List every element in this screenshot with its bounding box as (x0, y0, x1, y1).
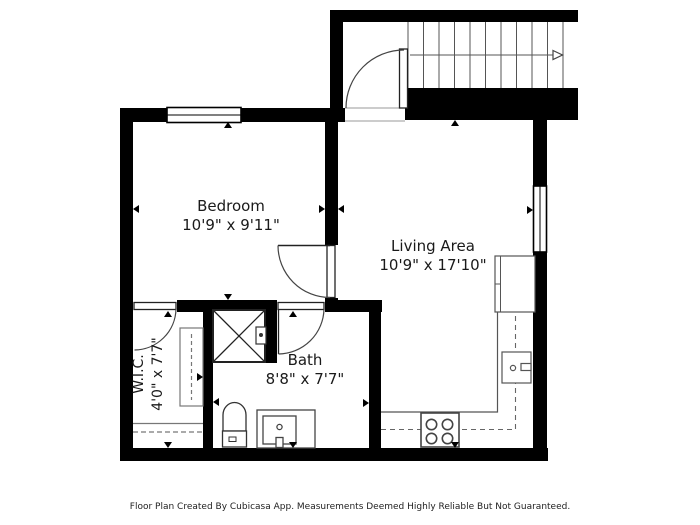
shower (213, 310, 266, 362)
bedroom-living-wall (325, 120, 338, 245)
staircase (408, 22, 563, 88)
bedroom-dimensions: 10'9" x 9'11" (182, 216, 280, 234)
left-wall (120, 108, 133, 461)
stove (421, 413, 459, 447)
stair-direction-arrow (410, 51, 563, 60)
refrigerator (495, 256, 535, 312)
toilet (223, 403, 247, 448)
shower-head-icon (256, 327, 266, 344)
bath-door (277, 300, 325, 354)
living-window (534, 186, 547, 252)
wic-label-group: W.I.C. 4'0" x 7'7" (131, 337, 166, 410)
bedroom-label: Bedroom (197, 197, 265, 215)
floor-plan-svg: Bedroom 10'9" x 9'11" Living Area 10'9" … (0, 0, 700, 525)
bath-label: Bath (288, 351, 323, 369)
living-area-dimensions: 10'9" x 17'10" (379, 256, 486, 274)
bedroom-door (278, 245, 338, 298)
bedroom-window (167, 108, 241, 123)
bath-living-wall (369, 310, 381, 450)
shower-stub-wall (265, 310, 277, 363)
floor-plan-canvas: Bedroom 10'9" x 9'11" Living Area 10'9" … (0, 0, 700, 525)
stair-bottom-wall (405, 88, 578, 120)
bath-dimensions: 8'8" x 7'7" (266, 370, 345, 388)
wic-bath-wall (203, 310, 213, 450)
wic-dimensions: 4'0" x 7'7" (150, 337, 166, 410)
kitchen-counter (381, 312, 516, 430)
wardrobe (180, 328, 203, 406)
bottom-wall (120, 448, 548, 461)
closet-rod (133, 424, 203, 433)
stair-left-wall (330, 10, 343, 122)
kitchen-sink (502, 352, 531, 383)
wic-label: W.I.C. (131, 354, 147, 394)
stair-top-wall (330, 10, 578, 22)
sink-vanity (257, 410, 315, 448)
entry-door (345, 49, 408, 123)
footer-disclaimer: Floor Plan Created By Cubicasa App. Meas… (130, 502, 570, 512)
living-area-label: Living Area (391, 237, 475, 255)
